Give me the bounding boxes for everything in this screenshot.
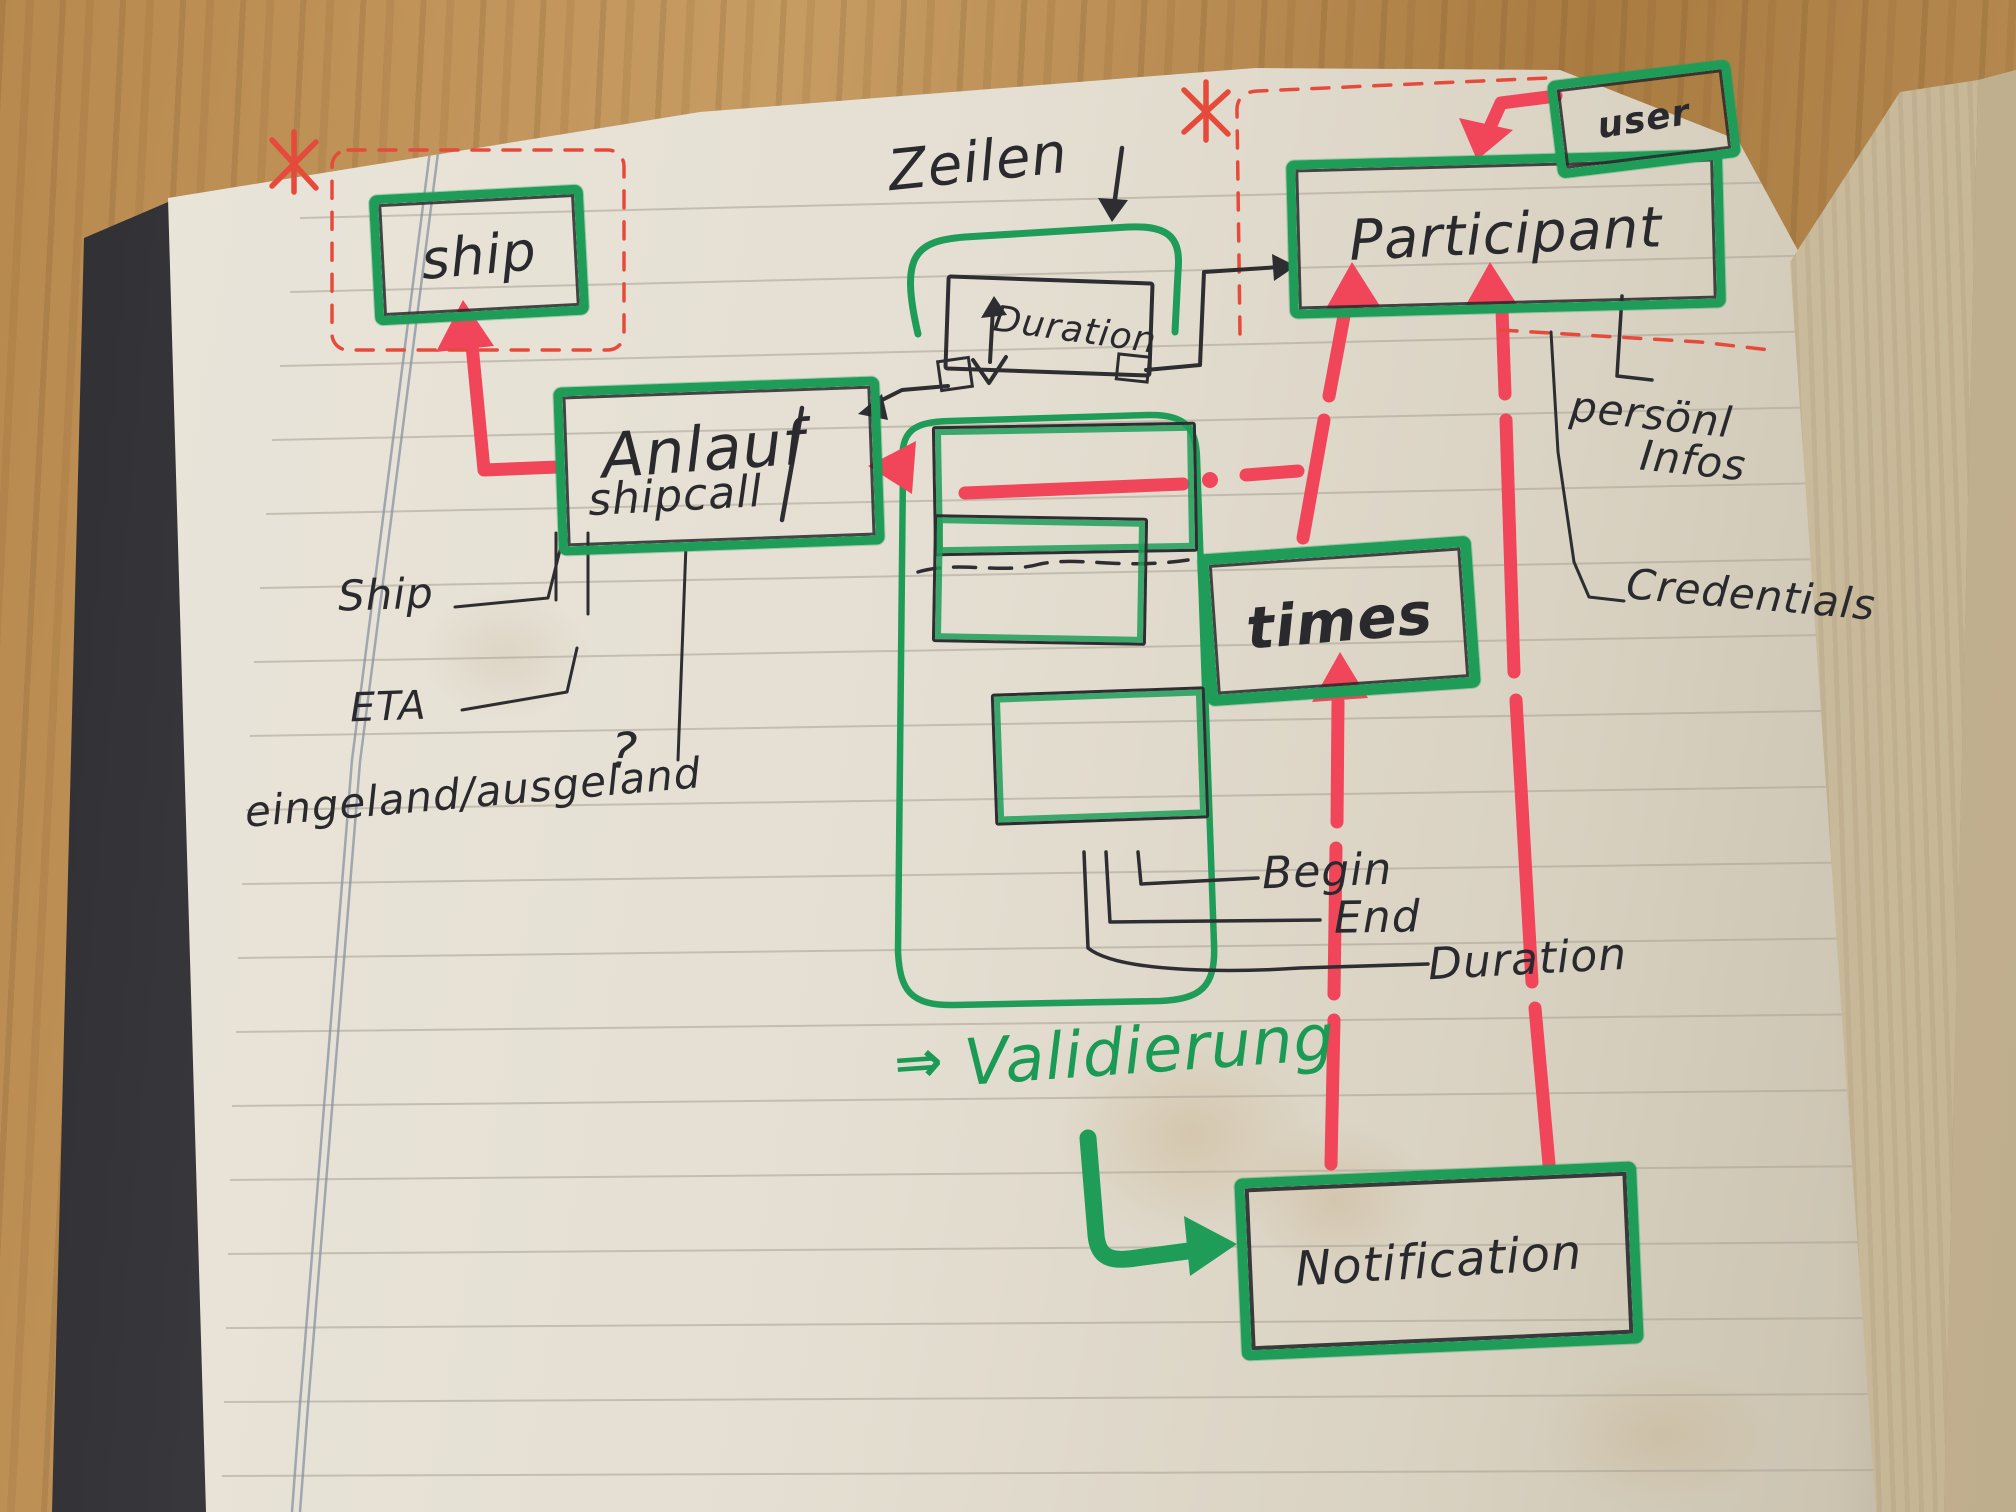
zeile-row-box-3 (991, 686, 1209, 825)
validation-arrow-glyph: ⇒ (892, 1026, 946, 1097)
connector-ship-attr (455, 550, 560, 607)
zeile-row-box-2 (932, 514, 1148, 646)
ship-attribute-label: Ship (337, 568, 434, 620)
connector-duration-to-anlauf (874, 386, 948, 404)
shipcall-label: shipcall (587, 466, 764, 526)
times-label: times (1243, 579, 1435, 663)
duration-box-foot-left (936, 356, 974, 392)
connector-eta (462, 648, 577, 710)
begin-attribute-label: Begin (1261, 844, 1393, 900)
arrow-notification-to-participant (1502, 310, 1549, 1164)
arrow-times-to-participant (1303, 300, 1347, 538)
zeilen-down-arrow (1114, 148, 1122, 206)
ship-entity-box: ship (369, 184, 590, 325)
zeilen-arrowhead (1098, 198, 1128, 222)
red-dot (1202, 472, 1218, 488)
connector-duration-to-participant (1146, 267, 1280, 370)
ship-entity-label: ship (419, 219, 540, 292)
connector-begin (1138, 852, 1258, 884)
end-attribute-label: End (1334, 891, 1422, 944)
question-mark: ? (608, 721, 640, 781)
connector-credentials (1551, 332, 1624, 601)
arrowhead-participant-from-user (1459, 118, 1513, 160)
notebook-photo: ship Anlauf shipcall Participant user ti… (0, 0, 2016, 1512)
green-elbow-arrow (1088, 1138, 1188, 1259)
notification-label: Notification (1294, 1224, 1584, 1297)
notification-entity-box: Notification (1234, 1161, 1644, 1360)
dashed-region-participant-bottom (1500, 330, 1770, 350)
connector-question (678, 545, 686, 760)
eta-attribute-label: ETA (349, 683, 427, 732)
user-label: user (1595, 91, 1694, 146)
participant-entity-box: Participant (1286, 149, 1726, 318)
duration-attribute-label: Duration (1427, 929, 1629, 990)
red-asterisk-ship (272, 132, 316, 192)
red-asterisk-participant (1184, 82, 1228, 140)
green-elbow-arrowhead (1184, 1216, 1237, 1276)
times-entity-box: times (1197, 536, 1481, 707)
duration-box-foot-right (1115, 352, 1152, 383)
participant-label: Participant (1348, 195, 1664, 274)
anlauf-shipcall-entity-box: Anlauf shipcall (553, 376, 885, 555)
duration-small-label: Duration (939, 291, 1159, 362)
